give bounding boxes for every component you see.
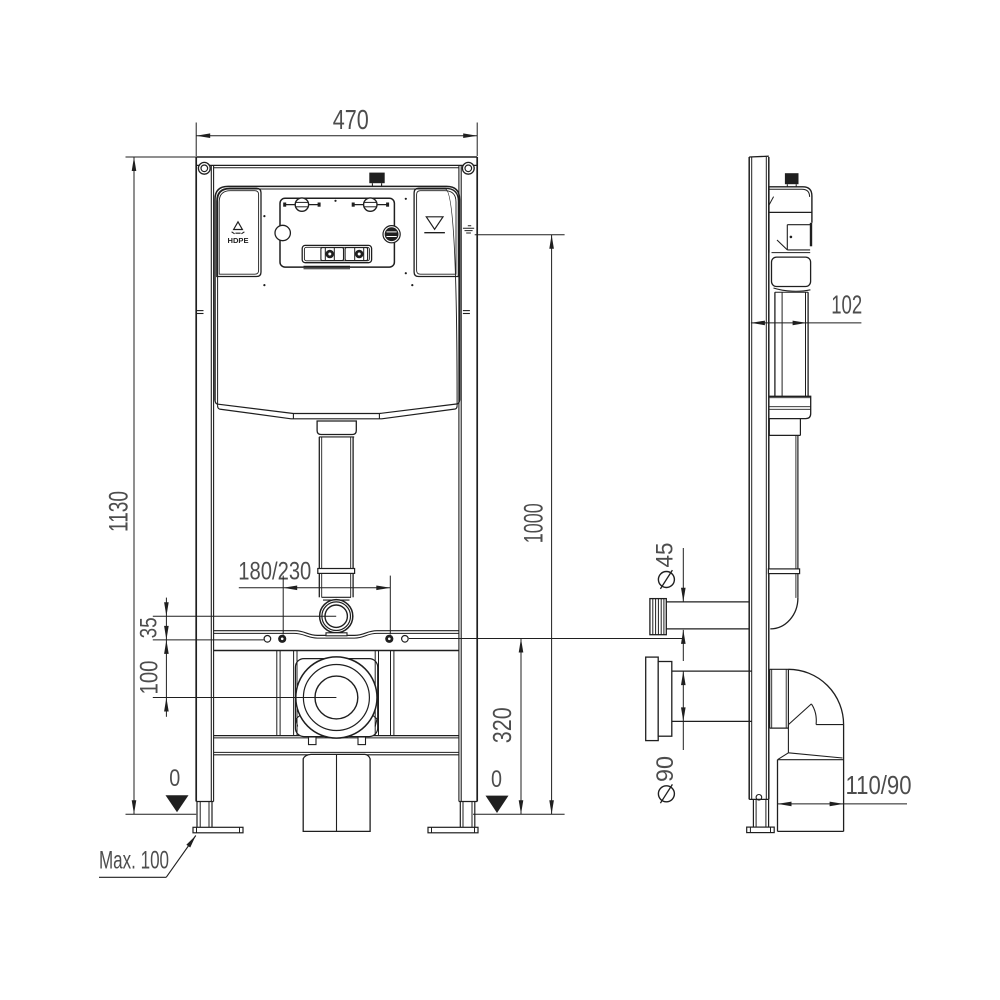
svg-text:100: 100 xyxy=(135,661,163,695)
svg-text:1000: 1000 xyxy=(519,503,549,543)
svg-text:320: 320 xyxy=(487,707,517,743)
svg-text:102: 102 xyxy=(831,290,862,320)
svg-text:180/230: 180/230 xyxy=(238,558,311,586)
svg-text:HDPE: HDPE xyxy=(228,236,249,245)
svg-text:90: 90 xyxy=(652,756,679,782)
svg-text:35: 35 xyxy=(136,617,163,638)
svg-text:1130: 1130 xyxy=(103,491,133,532)
svg-text:470: 470 xyxy=(333,104,369,135)
svg-text:0: 0 xyxy=(169,765,180,792)
svg-text:0: 0 xyxy=(491,766,502,793)
svg-text:45: 45 xyxy=(652,543,679,568)
svg-text:Max. 100: Max. 100 xyxy=(99,847,169,875)
svg-text:110/90: 110/90 xyxy=(846,770,912,800)
